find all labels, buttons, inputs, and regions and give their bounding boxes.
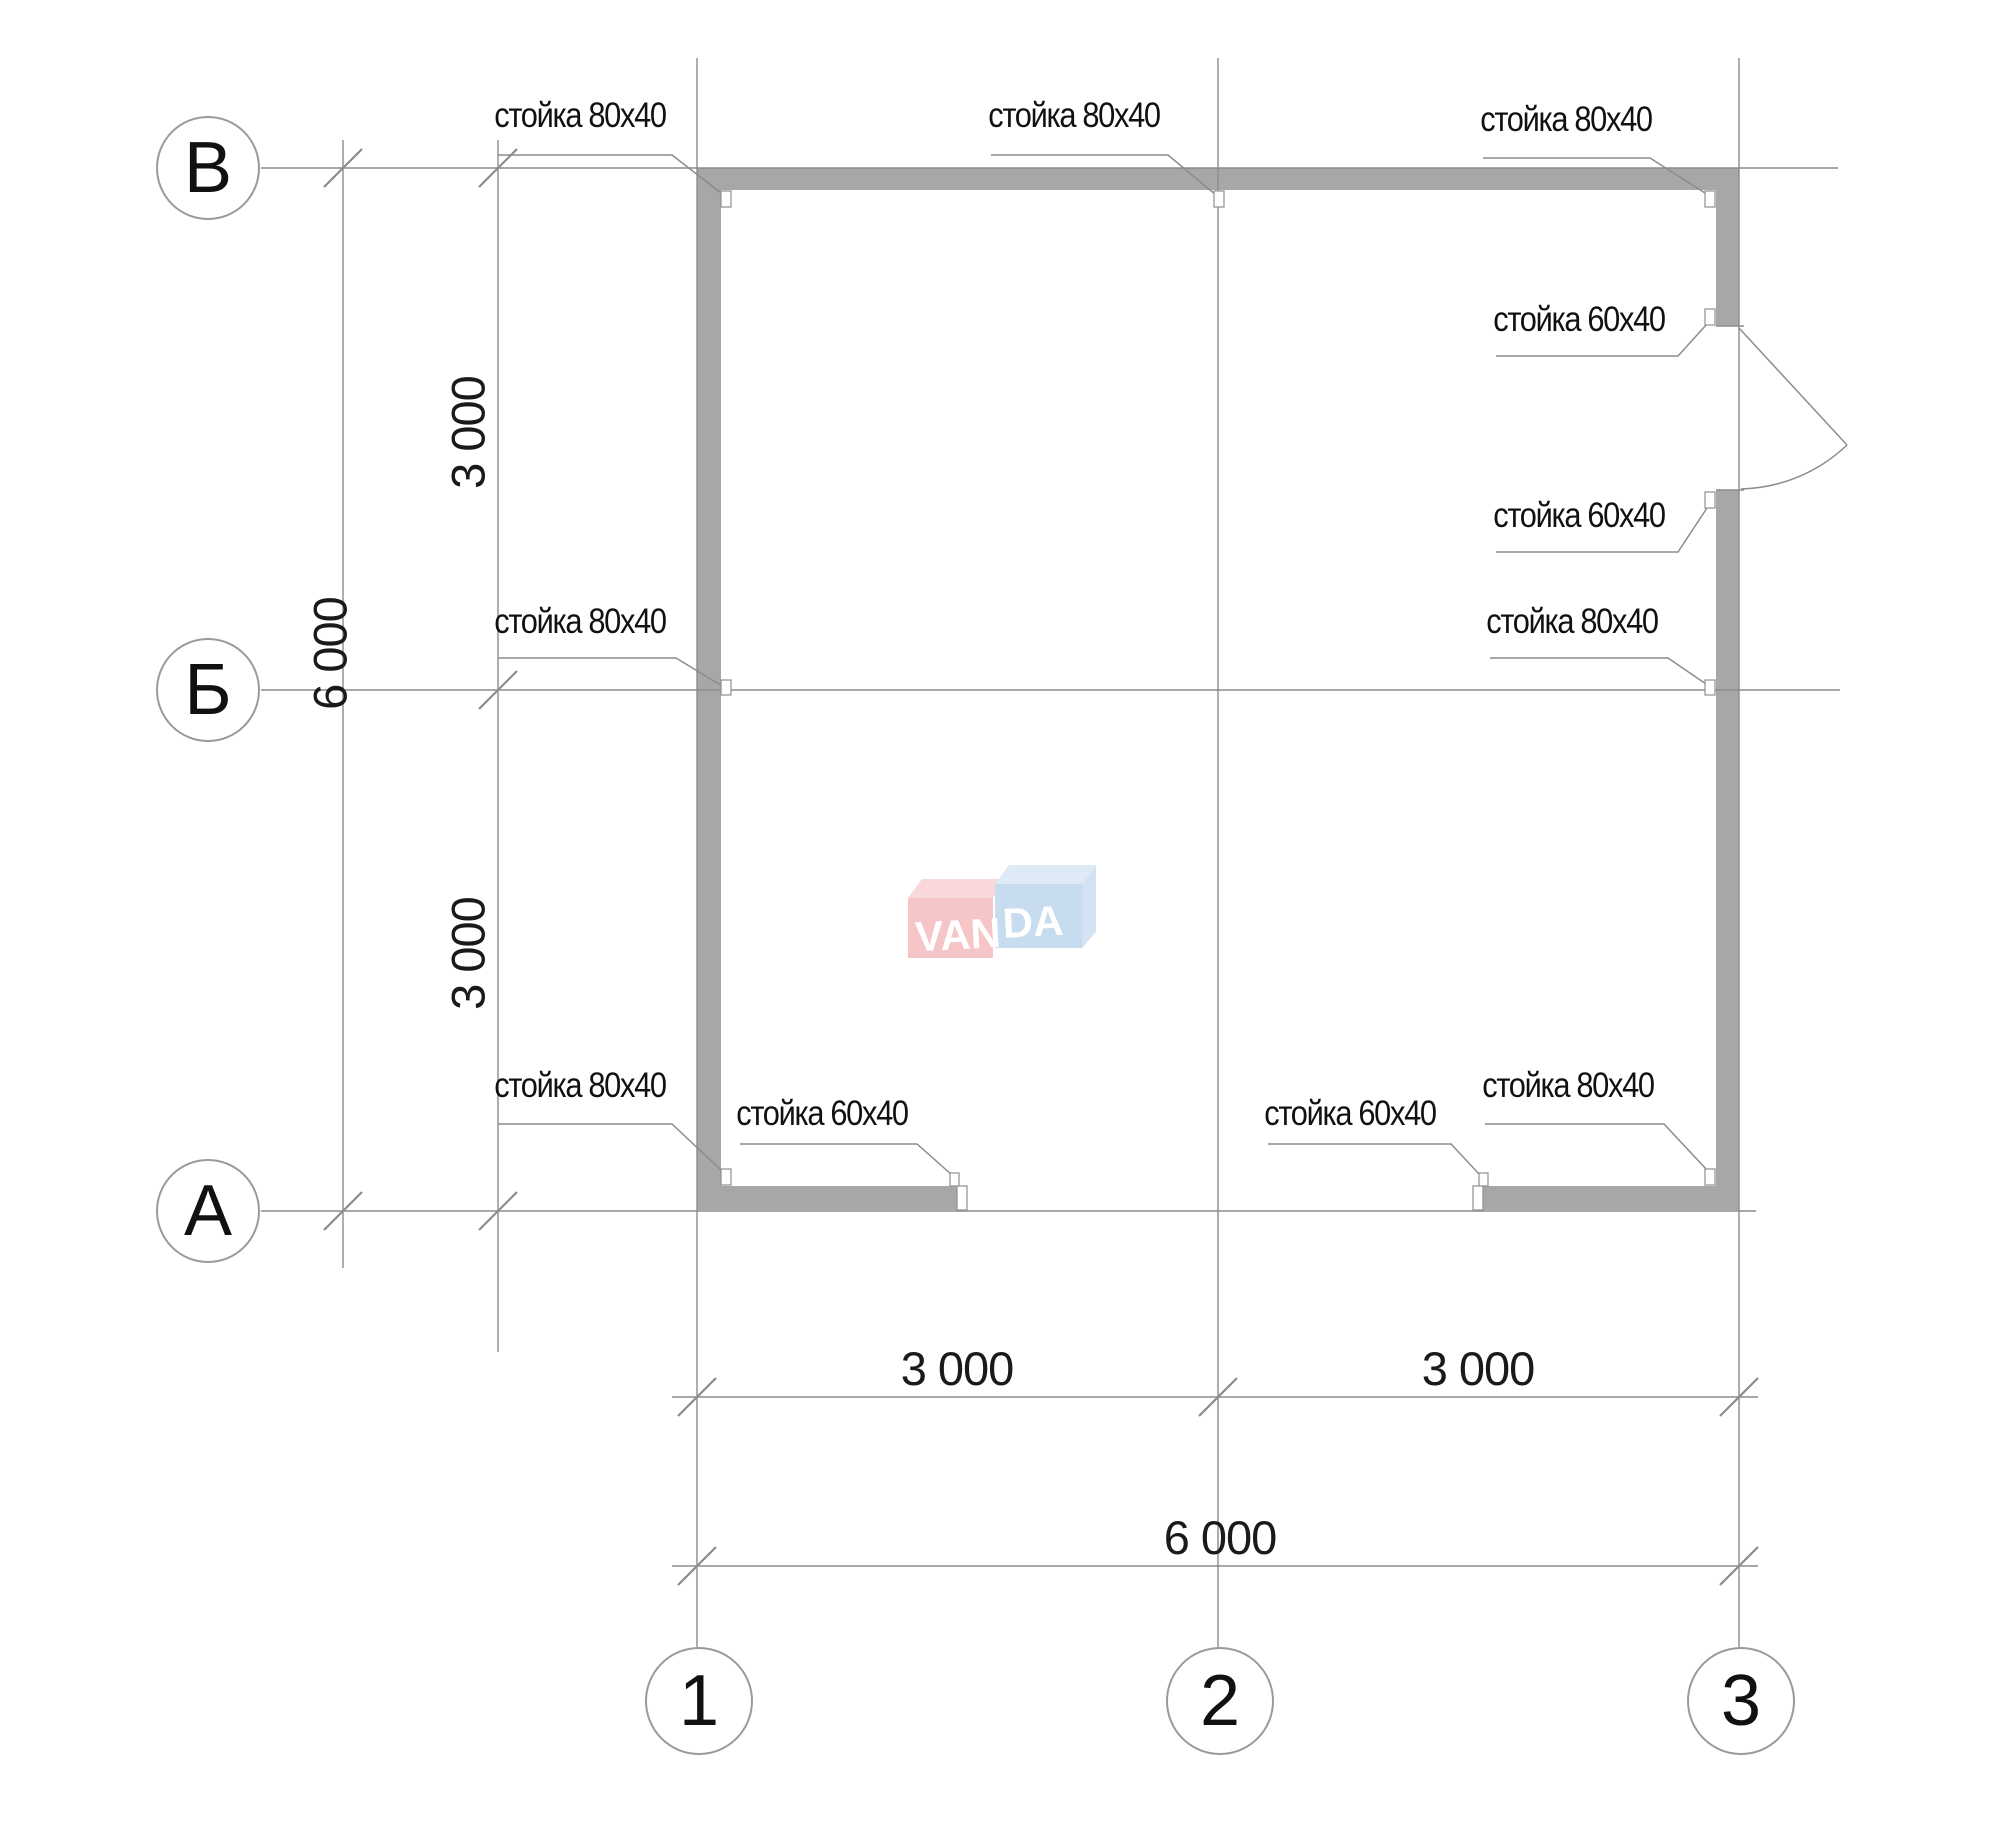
post-label-top-right: стойка 80х40 xyxy=(1452,100,1681,140)
dim-left-total: 6 000 xyxy=(303,544,358,764)
dim-left-span-bottom: 3 000 xyxy=(441,844,496,1064)
dim-left-span-top: 3 000 xyxy=(441,323,496,543)
axis-row-v: В xyxy=(156,116,260,220)
post-label-bottom-left-corner: стойка 80х40 xyxy=(466,1066,695,1106)
post-label-top-center: стойка 80х40 xyxy=(960,96,1189,136)
door-leaf xyxy=(1739,328,1847,445)
floor-plan-canvas: VAN DA В Б А 1 2 3 3 000 3 000 6 000 3 0… xyxy=(0,0,2000,1834)
post-label-mid-left: стойка 80х40 xyxy=(466,602,695,642)
post-label-door-bottom: стойка 60х40 xyxy=(1465,496,1694,536)
wall-bottom-left xyxy=(697,1186,957,1210)
post-label-bottom-left-inner: стойка 60х40 xyxy=(708,1094,937,1134)
logo-pink-top-face xyxy=(908,879,1007,898)
door-symbol xyxy=(1716,326,1847,490)
logo-text-da: DA xyxy=(1001,897,1064,947)
post-label-top-left: стойка 80х40 xyxy=(466,96,695,136)
dim-bottom-span-left: 3 000 xyxy=(847,1341,1067,1396)
plan-linework: VAN DA xyxy=(0,0,2000,1834)
dim-bottom-total: 6 000 xyxy=(1110,1510,1330,1565)
wall-end-cap-right xyxy=(1473,1186,1483,1210)
wall-left xyxy=(697,168,721,1210)
logo-blue-top-face xyxy=(995,865,1096,884)
axis-row-a: А xyxy=(156,1159,260,1263)
dim-bottom-span-right: 3 000 xyxy=(1368,1341,1588,1396)
vanda-watermark: VAN DA xyxy=(908,865,1096,960)
logo-text-van: VAN xyxy=(914,909,1002,960)
wall-right-lower xyxy=(1716,490,1739,1210)
axis-col-2: 2 xyxy=(1166,1647,1274,1755)
axis-col-1: 1 xyxy=(645,1647,753,1755)
post-label-bottom-right-inner: стойка 60х40 xyxy=(1236,1094,1465,1134)
axis-col-3: 3 xyxy=(1687,1647,1795,1755)
post-label-door-top: стойка 60х40 xyxy=(1465,300,1694,340)
wall-bottom-right xyxy=(1483,1186,1739,1210)
post-label-mid-right: стойка 80х40 xyxy=(1458,602,1687,642)
wall-right-upper xyxy=(1716,168,1739,326)
wall-end-cap-left xyxy=(957,1186,967,1210)
door-swing-arc xyxy=(1741,445,1847,489)
axis-row-b: Б xyxy=(156,638,260,742)
post-label-bottom-right-corner: стойка 80х40 xyxy=(1454,1066,1683,1106)
